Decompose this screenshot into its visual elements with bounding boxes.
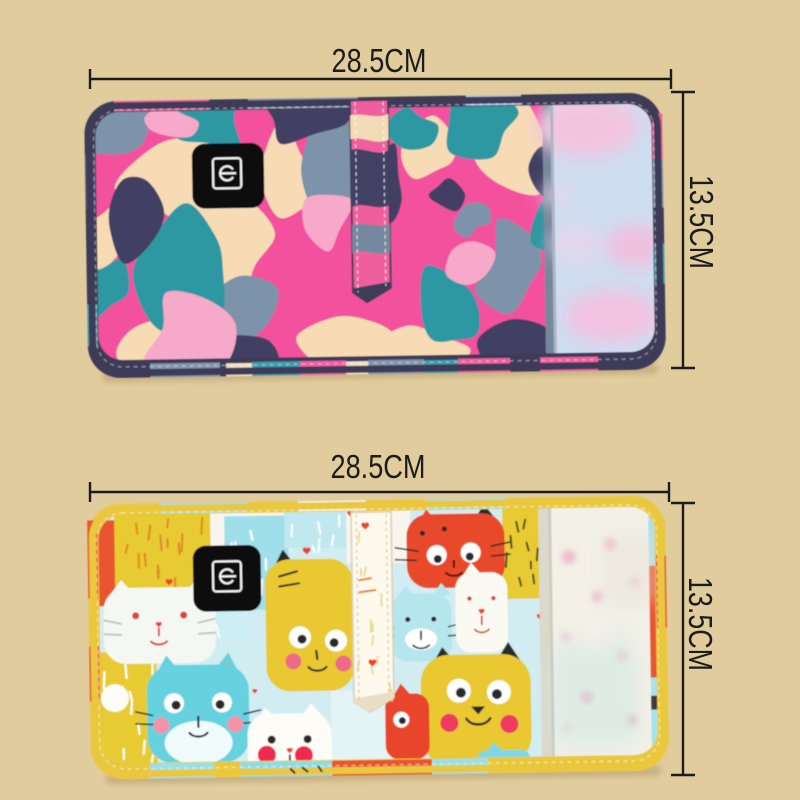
svg-text:13.5CM: 13.5CM [682, 577, 719, 671]
svg-text:13.5CM: 13.5CM [683, 175, 720, 269]
svg-text:28.5CM: 28.5CM [332, 42, 427, 79]
svg-text:28.5CM: 28.5CM [331, 448, 426, 485]
